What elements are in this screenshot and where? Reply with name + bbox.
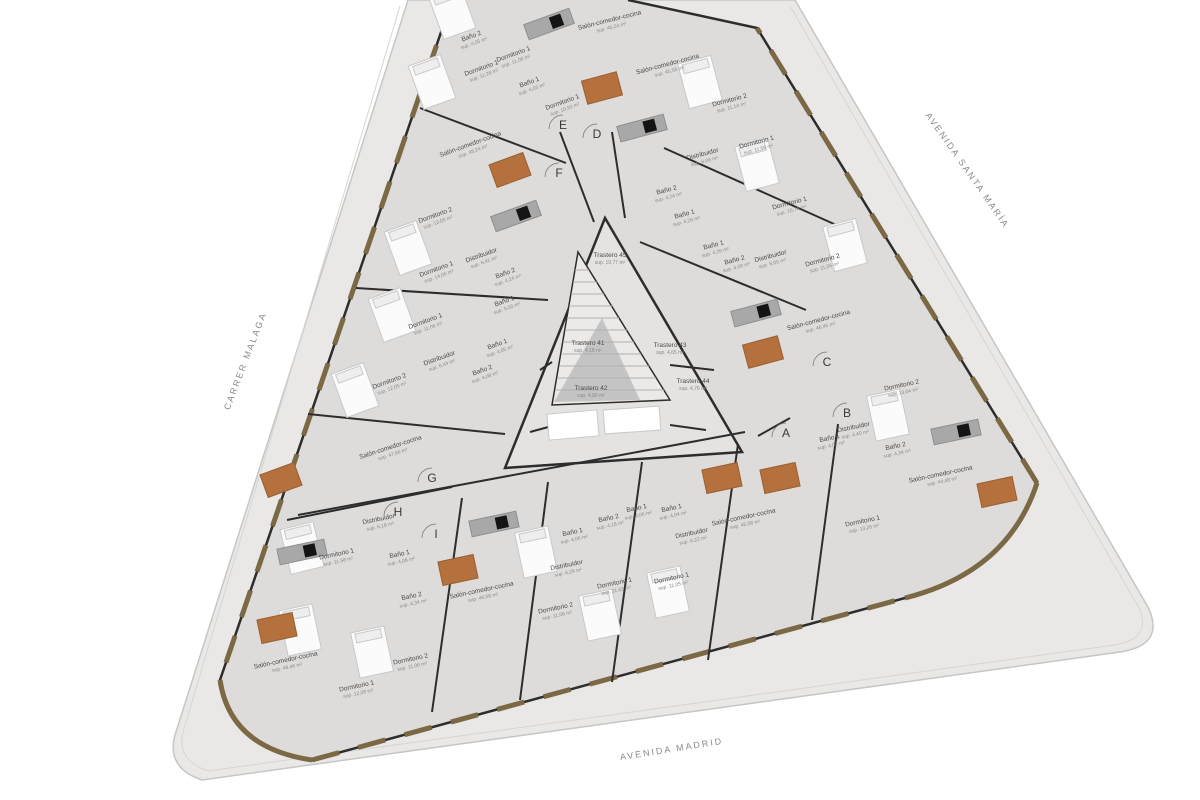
street-label: AVENIDA SANTA MARÍA [924,111,1012,230]
entrance-letter-text: G [427,471,436,485]
street-name-text: AVENIDA MADRID [619,736,724,762]
trastero-room [547,410,599,440]
room-name-text: Trastero 44 [677,378,710,385]
room-area-text: sup. 4,65 m² [656,350,684,356]
entrance-letter-text: E [559,118,567,132]
room-area-text: sup. 4,80 m² [577,393,605,399]
entrance-letter-text: D [593,127,602,141]
room-name-text: Trastero 41 [572,340,605,347]
street-name-text: CARRER MALAGA [222,311,269,412]
entrance-letter-text: H [394,505,403,519]
room-name-text: Trastero 43 [654,342,687,349]
entrance-letter-text: A [782,426,790,440]
entrance-letter-text: C [823,355,832,369]
room-area-text: sup. 4,76 m² [679,386,707,392]
floor-plan-canvas: Baño 2sup. 4,05 m²Dormitorio 1sup. 11,08… [0,0,1200,800]
trastero-room [603,406,661,434]
entrance-letter-text: F [555,166,562,180]
street-name-text: AVENIDA SANTA MARÍA [924,111,1012,230]
floor-plan-drawing: Baño 2sup. 4,05 m²Dormitorio 1sup. 11,08… [0,0,1200,800]
street-label: CARRER MALAGA [222,311,269,412]
entrance-letter-text: I [434,527,437,541]
entrance-letter-text: B [843,406,851,420]
room-area-text: sup. 10,77 m² [595,260,626,266]
room-name-text: Trastero 45 [594,252,627,259]
room-area-text: sup. 4,18 m² [574,348,602,354]
street-label: AVENIDA MADRID [619,736,724,762]
room-name-text: Trastero 42 [575,385,608,392]
